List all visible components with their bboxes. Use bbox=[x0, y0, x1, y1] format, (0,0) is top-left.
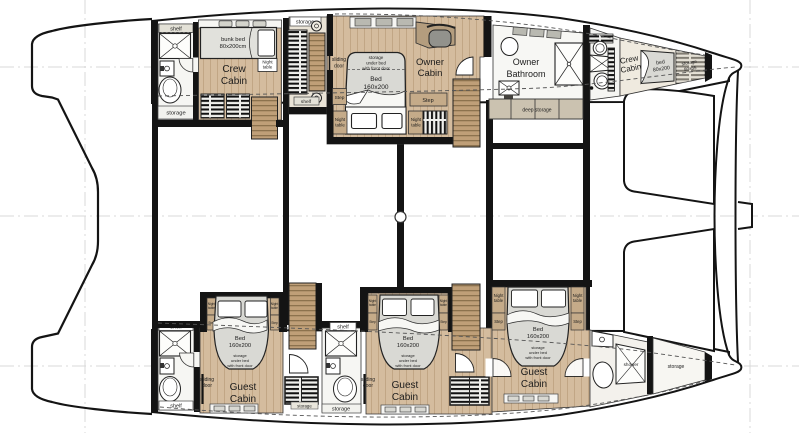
svg-text:door: door bbox=[334, 64, 344, 70]
svg-text:table: table bbox=[573, 298, 583, 303]
svg-text:table: table bbox=[494, 298, 504, 303]
svg-text:Guest: Guest bbox=[392, 380, 419, 391]
svg-text:table: table bbox=[411, 123, 421, 128]
svg-text:under bed: under bed bbox=[366, 61, 386, 66]
svg-text:table: table bbox=[369, 303, 376, 307]
svg-text:shelf: shelf bbox=[301, 99, 312, 105]
svg-text:Crew: Crew bbox=[222, 64, 246, 75]
svg-text:Step: Step bbox=[573, 319, 582, 324]
svg-text:storage: storage bbox=[369, 55, 384, 60]
svg-text:shelf: shelf bbox=[170, 27, 182, 33]
svg-text:Guest: Guest bbox=[230, 382, 257, 393]
svg-text:160x200: 160x200 bbox=[527, 334, 549, 340]
svg-text:Night: Night bbox=[335, 117, 346, 122]
svg-text:Bed: Bed bbox=[533, 327, 543, 333]
svg-text:table: table bbox=[335, 123, 345, 128]
svg-text:Step: Step bbox=[494, 319, 503, 324]
svg-text:with front door: with front door bbox=[362, 66, 390, 71]
svg-text:Cabin: Cabin bbox=[230, 394, 256, 405]
svg-text:table: table bbox=[271, 306, 278, 310]
svg-text:door: door bbox=[363, 383, 373, 389]
svg-text:Night: Night bbox=[411, 117, 422, 122]
svg-text:storage: storage bbox=[668, 364, 685, 370]
svg-text:Owner: Owner bbox=[513, 57, 540, 67]
svg-text:Step: Step bbox=[422, 98, 433, 104]
svg-text:deep storage: deep storage bbox=[522, 108, 551, 114]
svg-text:Bed: Bed bbox=[235, 336, 245, 342]
svg-text:door: door bbox=[202, 383, 212, 389]
svg-text:80x200cm: 80x200cm bbox=[220, 44, 247, 50]
svg-text:160x200: 160x200 bbox=[229, 343, 251, 349]
svg-text:Step: Step bbox=[335, 95, 345, 101]
svg-text:table: table bbox=[440, 303, 447, 307]
svg-text:Step: Step bbox=[271, 321, 278, 325]
svg-text:Cabin: Cabin bbox=[392, 392, 418, 403]
svg-text:with front door: with front door bbox=[395, 363, 421, 368]
svg-text:Bed: Bed bbox=[403, 336, 413, 342]
svg-text:Guest: Guest bbox=[521, 367, 548, 378]
svg-text:Cabin: Cabin bbox=[418, 68, 443, 79]
svg-text:Cabin: Cabin bbox=[521, 379, 547, 390]
svg-text:Step: Step bbox=[369, 320, 376, 324]
svg-text:shower: shower bbox=[624, 362, 639, 367]
svg-text:with front door: with front door bbox=[525, 355, 551, 360]
svg-text:shelf: shelf bbox=[337, 325, 349, 331]
svg-text:table: table bbox=[208, 306, 215, 310]
svg-text:Step: Step bbox=[440, 320, 447, 324]
svg-text:sliding: sliding bbox=[332, 57, 346, 63]
svg-text:table: table bbox=[263, 65, 273, 70]
svg-text:Bed: Bed bbox=[370, 76, 382, 83]
svg-text:Owner: Owner bbox=[416, 57, 444, 68]
svg-text:160x200: 160x200 bbox=[364, 84, 389, 91]
svg-text:storage: storage bbox=[297, 404, 312, 409]
svg-text:Bathroom: Bathroom bbox=[506, 69, 545, 79]
svg-text:with front door: with front door bbox=[227, 363, 253, 368]
svg-text:bunk bed: bunk bed bbox=[221, 37, 245, 43]
svg-text:Cabin: Cabin bbox=[221, 76, 247, 87]
svg-text:160x200: 160x200 bbox=[397, 343, 419, 349]
svg-text:storage: storage bbox=[332, 407, 350, 413]
svg-text:storage: storage bbox=[166, 111, 185, 117]
